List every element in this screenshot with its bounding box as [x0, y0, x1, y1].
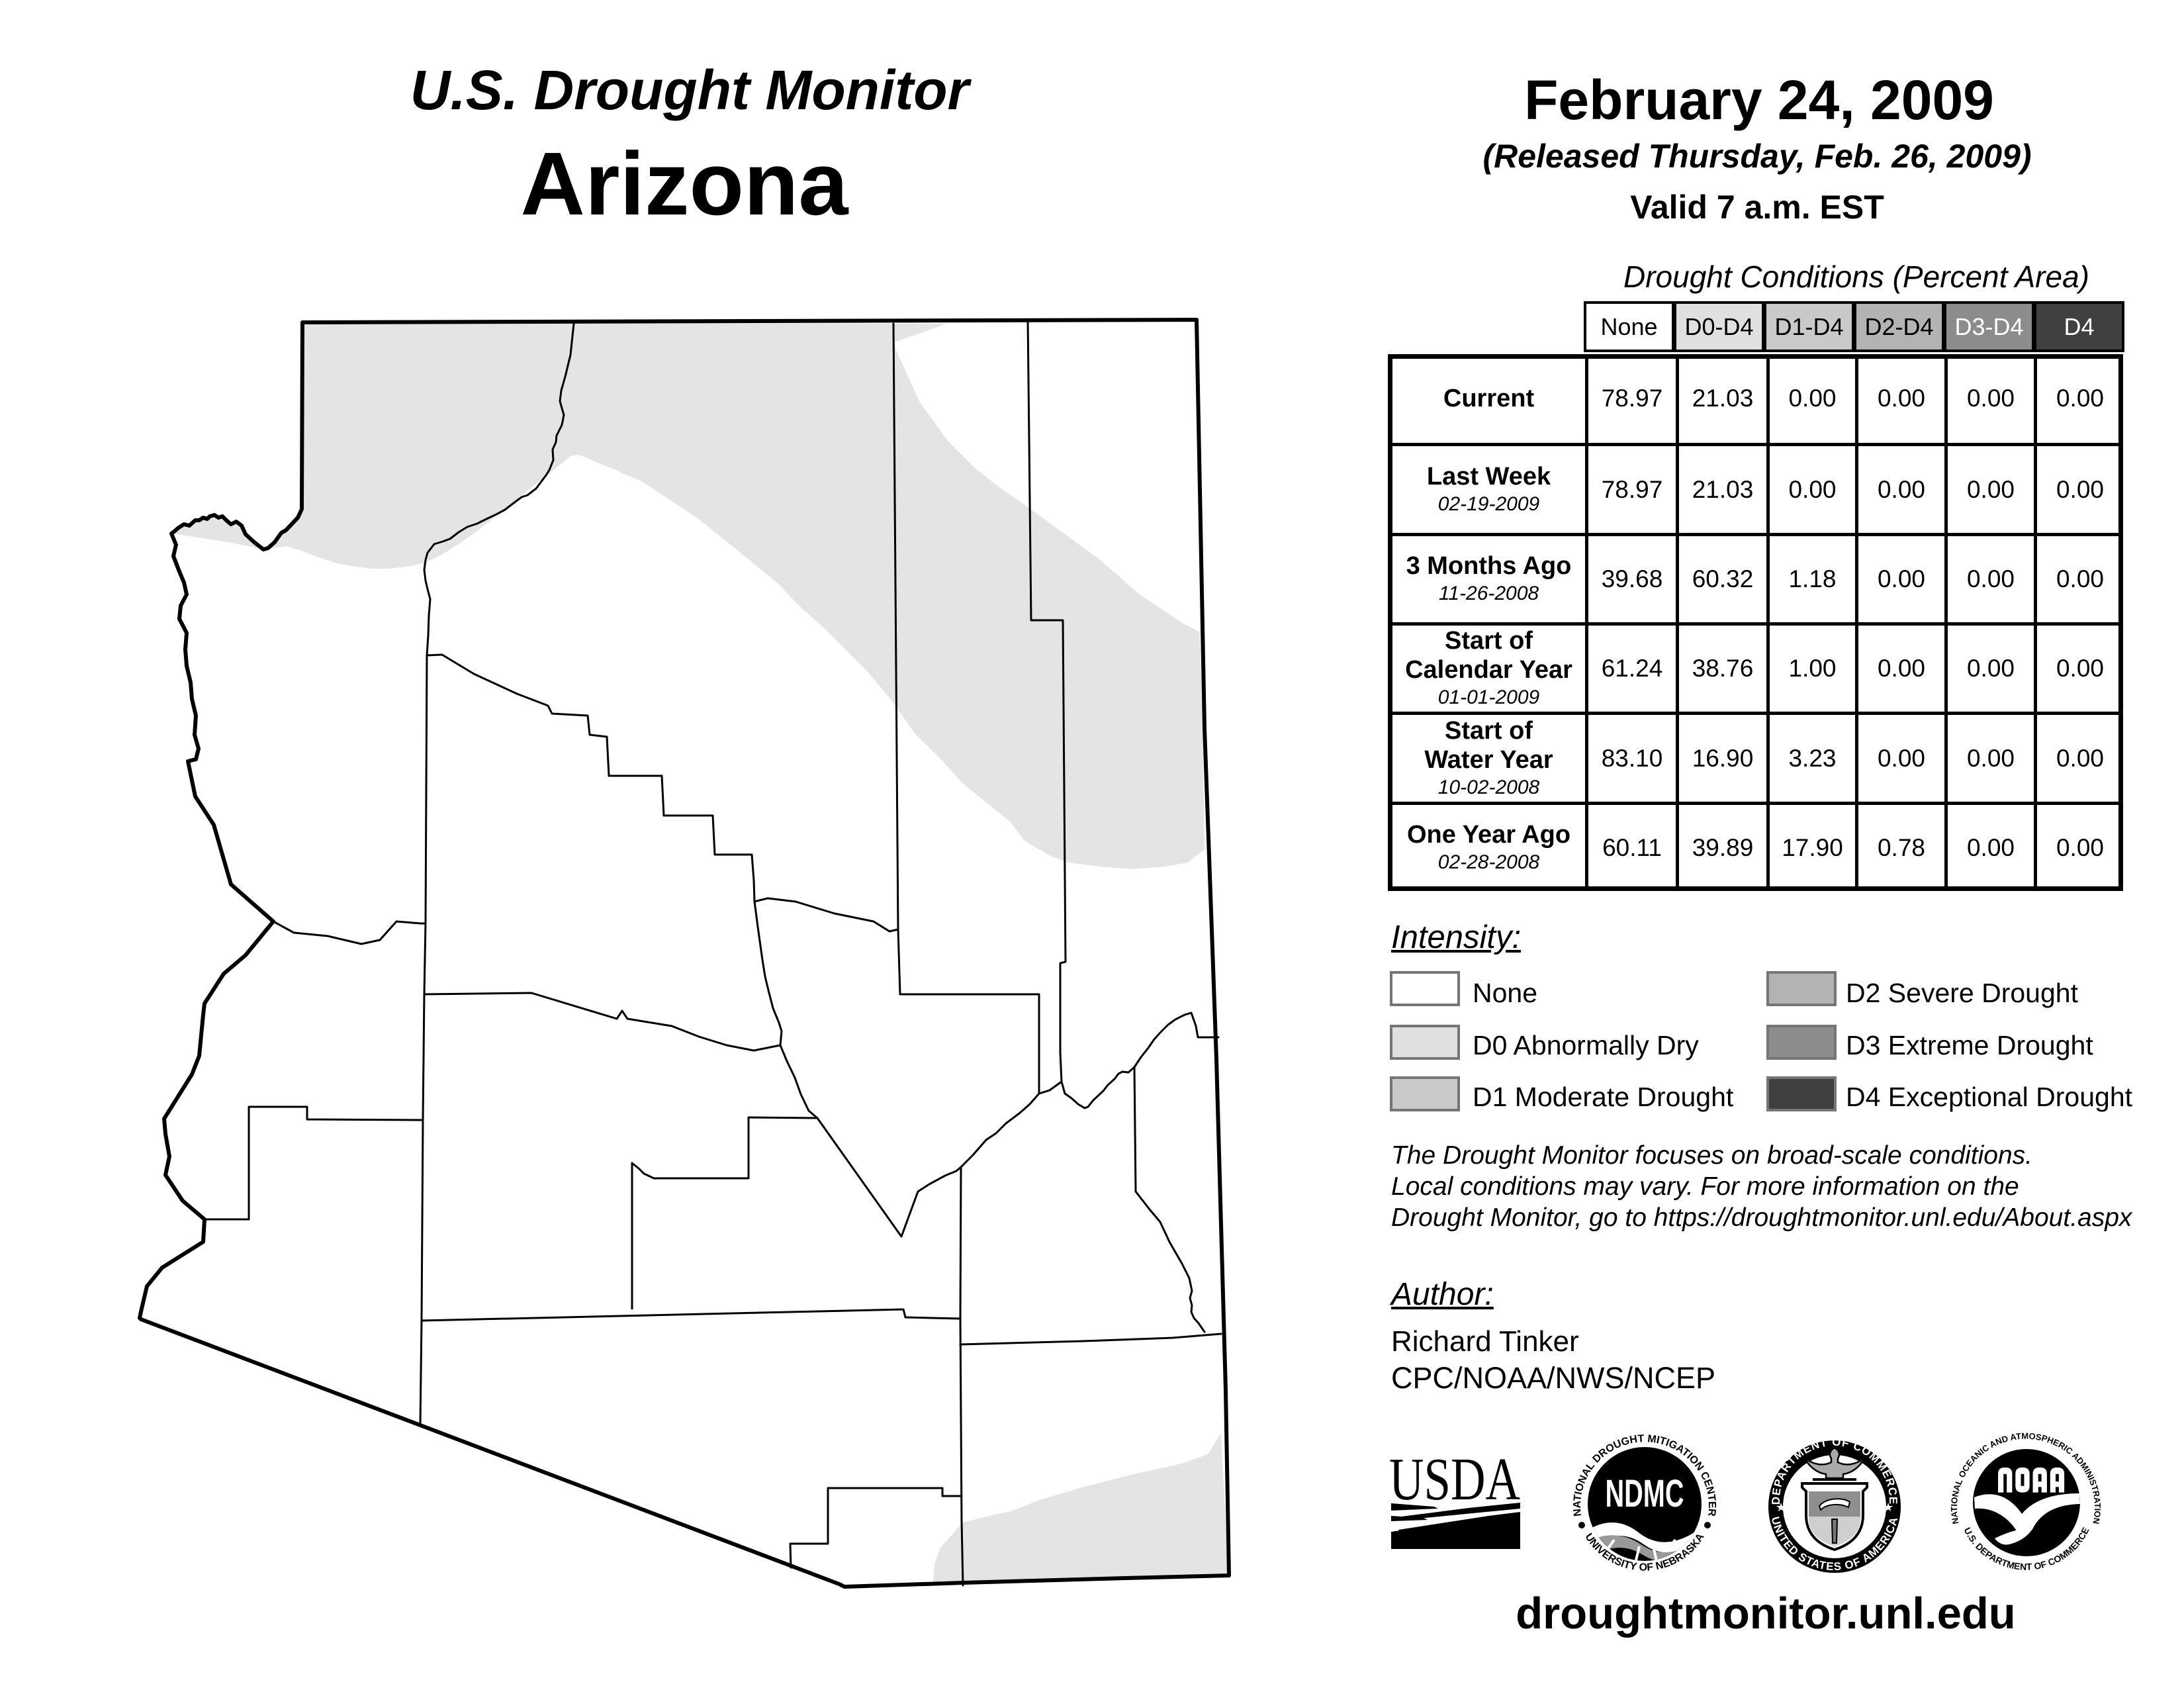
svg-text:★: ★	[1776, 1501, 1786, 1514]
svg-text:NDMC: NDMC	[1606, 1472, 1684, 1515]
svg-text:★: ★	[1883, 1501, 1893, 1514]
svg-text:USDA: USDA	[1389, 1446, 1520, 1513]
